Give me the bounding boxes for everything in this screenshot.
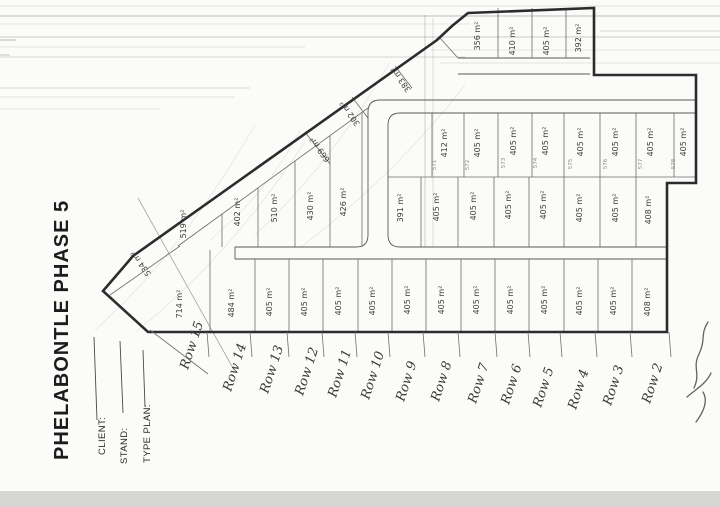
lot-area-label: 426 m² <box>339 188 348 217</box>
lot-area-label: 410 m² <box>508 27 517 56</box>
lot-area-label: 405 m² <box>679 128 688 157</box>
lot-area-label: 405 m² <box>541 127 550 156</box>
lot-area-label: 405 m² <box>575 194 584 223</box>
lot-area-label: 405 m² <box>368 287 377 316</box>
lot-area-label: 405 m² <box>646 128 655 157</box>
lot-area-label: 412 m² <box>440 129 449 158</box>
lot-area-label: 405 m² <box>611 194 620 223</box>
lot-area-label: 430 m² <box>306 192 315 221</box>
stand-number: 573 <box>501 157 507 168</box>
stand-number: 571 <box>432 160 438 171</box>
lot-area-label: 405 m² <box>506 286 515 315</box>
lot-area-label: 408 m² <box>643 288 652 317</box>
lot-area-label: 405 m² <box>403 286 412 315</box>
lot-area-label: 408 m² <box>644 196 653 225</box>
lot-area-label: 405 m² <box>265 288 274 317</box>
lot-area-label: 405 m² <box>611 128 620 157</box>
lot-area-label: 405 m² <box>539 191 548 220</box>
lot-area-label: 392 m² <box>574 24 583 53</box>
plan-title: PHELABONTLE PHASE 5 <box>51 200 73 460</box>
stand-number: 577 <box>638 158 644 169</box>
lot-area-label: 405 m² <box>334 287 343 316</box>
client-label: CLIENT: <box>97 417 108 455</box>
lot-area-label: 405 m² <box>576 128 585 157</box>
lot-area-label: 405 m² <box>509 127 518 156</box>
lot-area-label: 714 m² <box>175 290 184 319</box>
lot-area-label: 405 m² <box>504 191 513 220</box>
lot-area-label: 405 m² <box>575 287 584 316</box>
lot-area-label: 405 m² <box>432 193 441 222</box>
lot-area-label: 484 m² <box>227 289 236 318</box>
stand-number: 576 <box>603 158 609 169</box>
type-plan-label: TYPE PLAN: <box>142 404 153 463</box>
lot-area-label: 405 m² <box>437 286 446 315</box>
stand-number: 574 <box>533 157 539 168</box>
site-plan-drawing: PHELABONTLE PHASE 5 CLIENT: STAND: TYPE … <box>0 0 720 507</box>
lot-area-label: 519 m² <box>179 210 188 239</box>
lot-area-label: 356 m² <box>473 22 482 51</box>
stand-number: 572 <box>465 160 471 171</box>
lot-area-label: 391 m² <box>396 194 405 223</box>
scanned-plan-sheet: PHELABONTLE PHASE 5 CLIENT: STAND: TYPE … <box>0 0 720 507</box>
lot-area-label: 405 m² <box>609 287 618 316</box>
lot-area-label: 405 m² <box>469 192 478 221</box>
lot-area-label: 510 m² <box>270 194 279 223</box>
lot-area-label: 405 m² <box>473 129 482 158</box>
lot-area-label: 405 m² <box>472 286 481 315</box>
lot-area-label: 405 m² <box>542 27 551 56</box>
lot-area-label: 405 m² <box>300 288 309 317</box>
stand-label: STAND: <box>119 427 130 464</box>
scan-bottom-band <box>0 491 720 507</box>
stand-number: 578 <box>671 158 677 169</box>
lot-area-label: 405 m² <box>540 286 549 315</box>
lot-area-label: 402 m² <box>233 198 242 227</box>
stand-number: 575 <box>568 158 574 169</box>
